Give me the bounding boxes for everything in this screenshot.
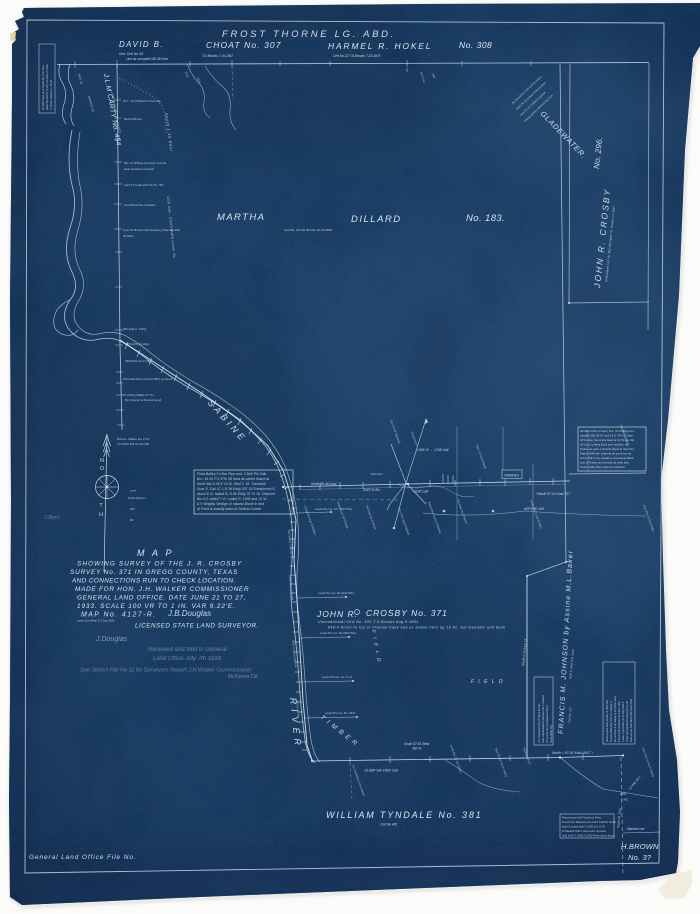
svg-text:AND CONNECTIONS RUN TO CHECK L: AND CONNECTIONS RUN TO CHECK LOCATION.	[71, 578, 236, 585]
svg-text:Brush Pile line: Brush Pile line	[124, 117, 142, 121]
svg-text:about 5 Vr. Island B. S.39 Ed: about 5 Vr. Island B. S.39 Eddy 37 Vr 18…	[197, 492, 275, 496]
svg-text:Lewis Pre Co. No.3297 Bdry: Lewis Pre Co. No.3297 Bdry	[320, 631, 357, 635]
svg-text:1127 27 Cedar bluff crk 40. 78: 1127 27 Cedar bluff crk 40. 78.5	[124, 183, 164, 187]
svg-text:Bro. 32.40 P.2 379r 38 Vara: Bro. 32.40 P.2 379r 38 Vara as called St…	[197, 477, 269, 481]
svg-text:Lewis Pre Co. No. 4197 Bdry: Lewis Pre Co. No. 4197 Bdry	[315, 507, 353, 511]
svg-text:FROST THORNE LG. ABD.: FROST THORNE LG. ABD.	[222, 29, 396, 40]
svg-text:SHOWING SURVEY OF THE J. R: SHOWING SURVEY OF THE J. R. CROSBY	[77, 561, 242, 568]
svg-text:Natural Genl back Corner at P: Natural Genl back Corner at Pitts Oak	[606, 699, 609, 742]
svg-text:J.Douglas: J.Douglas	[95, 636, 128, 643]
svg-text:MAP No. 4127-R.: MAP No. 4127-R.	[81, 612, 157, 619]
svg-text:Resurveyed Call Fractional R: Resurveyed Call Fractional River	[562, 816, 601, 820]
svg-text:Line as occupied 390.45 East: Line as occupied 390.45 East	[126, 57, 168, 61]
svg-text:J.Byrn: J.Byrn	[43, 515, 60, 521]
svg-text:Texas 1910 West about it Chann: Texas 1910 West about it Channel	[580, 465, 625, 469]
svg-text:South 87.51 West: South 87.51 West	[404, 742, 429, 746]
svg-text:DAVID B.: DAVID B.	[119, 40, 164, 49]
svg-text:No. 3?: No. 3?	[628, 853, 652, 862]
svg-text:west Counted with A 1090 at: west Counted with A 1090 at it Vr W	[562, 825, 605, 829]
svg-text:My Channel at Present found: My Channel at Present found	[125, 398, 162, 402]
svg-text:J.B.Douglas: J.B.Douglas	[167, 609, 211, 618]
svg-text:Branch Methodist Sect on it ha: Branch Methodist Sect on it hangs of	[610, 701, 613, 742]
svg-text:370 Adda Rose Techmit 408.3 u: 370 Adda Rose Techmit 408.3 up trench	[123, 377, 173, 381]
svg-text:O: O	[100, 466, 105, 472]
svg-text:Lewis Pre Co. No. 2317: Lewis Pre Co. No. 2317	[325, 711, 356, 715]
svg-text:it lines and Channel it as it: it lines and Channel it as it W.H. also	[618, 701, 621, 742]
svg-text:General Land Office File No.: General Land Office File No.	[29, 854, 137, 861]
svg-text:Cert. Cert No. 63: Cert. Cert No. 63	[119, 52, 143, 56]
svg-text:Flora Bailey Fo Bar Pipe und: Flora Bailey Fo Bar Pipe und. 2 Bell Pin…	[197, 472, 267, 476]
svg-text:notes Cost Bear O.T.Lay 1931: notes Cost Bear O.T.Lay 1931	[77, 619, 115, 623]
svg-text:Bank 424 and N 70 1/2 E 8 mile: Bank 424 and N 70 1/2 E 8 miles of Bank	[46, 64, 49, 110]
svg-text:Land Office July 7th 1933: Land Office July 7th 1933	[153, 656, 222, 662]
svg-text:CHOAT No. 307: CHOAT No. 307	[206, 40, 282, 50]
svg-text:SURVEY No. 371 IN GREGG COU: SURVEY No. 371 IN GREGG COUNTY, TEXAS	[70, 569, 238, 576]
svg-text:Said substantiated it likewis: Said substantiated it likewise tail 1 Ch…	[542, 695, 545, 743]
svg-text:Gum S. Call 47 L.S 39 Eddy 407: Gum S. Call 47 L.S 39 Eddy 407 18 Transf…	[197, 487, 276, 491]
svg-text:Lewis Pre Co. No.4197 Bdry: Lewis Pre Co. No.4197 Bdry	[318, 591, 355, 595]
svg-text:Marked Line: Marked Line	[627, 827, 645, 831]
svg-text:49 West: 49 West	[123, 234, 133, 238]
svg-text:Received and filed in General: Received and filed in General	[148, 647, 227, 653]
svg-text:Stand 1849 the channel as yet: Stand 1849 the channel as yet there do	[580, 452, 632, 456]
svg-text:LICENSED STATE LAND SURVEYO: LICENSED STATE LAND SURVEYOR.	[135, 623, 259, 630]
svg-text:1453: 1453	[620, 792, 627, 796]
svg-text:and of Points an exercise at: and of Points an exercise at calls also	[580, 461, 630, 465]
svg-text:North 89.46 East: North 89.46 East	[311, 482, 338, 486]
svg-text:10.66P Var 1863 Call: 10.66P Var 1863 Call	[364, 769, 398, 773]
svg-text:47 Christy Walker 47 Vrs: 47 Christy Walker 47 Vrs	[123, 393, 154, 397]
svg-text:MARSH: MARSH	[505, 473, 520, 478]
svg-text:No. 183.: No. 183.	[466, 213, 505, 224]
svg-text:GENERAL LAND OFFICE. DATE JUN: GENERAL LAND OFFICE. DATE JUNE 21 TO 27,	[77, 595, 246, 602]
svg-text:Cert No 400: Cert No 400	[380, 823, 397, 827]
svg-text:1777: 1777	[130, 489, 137, 493]
svg-text:Set Preparation by 24 hours he: Set Preparation by 24 hours he has	[538, 703, 541, 743]
svg-text:of Point is exactly point of: of Point is exactly point of Central Cor…	[197, 507, 262, 511]
svg-text:Mar E.L. Walker line 47Vs: Mar E.L. Walker line 47Vs	[117, 437, 150, 441]
svg-text:hold as Pr.7 1938 A 1082 Park: hold as Pr.7 1938 A 1082 Parks Stone alo…	[562, 834, 615, 838]
svg-text:1933. SCALE 100 VR TO 1 IN.: 1933. SCALE 100 VR TO 1 IN. VAR 9.22'E.	[77, 603, 236, 610]
svg-text:Old Clue: Old Clue	[371, 472, 383, 476]
svg-text:N: N	[100, 458, 104, 464]
svg-text:F I E L D: F I E L D	[471, 679, 504, 685]
svg-text:40.7 - 10 W Bears in Post Oak: 40.7 - 10 W Bears in Post Oak	[123, 99, 161, 103]
svg-text:3.9 100% 409 mi 126 (36): 3.9 100% 409 mi 126 (36)	[117, 442, 149, 446]
svg-text:found S.W. Marked Line and 5: found S.W. Marked Line and 5 Call Pin So…	[562, 820, 616, 824]
svg-text:Unconditional Cert No. 491: Unconditional Cert No. 491 T.D.Brooks Au…	[318, 620, 419, 624]
svg-text:Cert No. 33 T.D. Brooks: Cert No. 33 T.D. Brooks 12-29-1844	[284, 228, 332, 232]
svg-text:found and stands the channel m: found and stands the channel my old	[626, 701, 629, 742]
svg-text:of Road I started s.o. Brook: of Road I started s.o. Brook	[50, 79, 53, 110]
svg-text:Cert No.22 T.D.Brooks 7: Cert No.22 T.D.Brooks 7-19-1847	[333, 54, 381, 58]
svg-text:bank as per Turn about (36) Ba: bank as per Turn about (36) Bank Strip	[630, 698, 633, 742]
svg-text:W Marked Oak 5 Vara well I am: W Marked Oak 5 Vara well I am East	[562, 829, 606, 833]
svg-text:Bro 5.2 called 7 Vr. Lookd R: Bro 5.2 called 7 Vr. Lookd R. 1009 and 1…	[197, 497, 267, 501]
svg-text:H: H	[99, 512, 103, 518]
svg-text:213 McCan No.1 49 East: 213 McCan No.1 49 East	[124, 203, 155, 207]
svg-text:DILLARD: DILLARD	[351, 214, 402, 225]
svg-text:1143 Vr Bu: 1143 Vr Bu	[363, 488, 380, 492]
svg-text:WILLIAM TYNDALE No. 381: WILLIAM TYNDALE No. 381	[326, 810, 482, 820]
svg-text:MADE FOR HON. J.H. WALKER COMM: MADE FOR HON. J.H. WALKER COMMISSIONER	[75, 586, 249, 593]
svg-text:601. 37 W Bear line lower end: 601. 37 W Bear line lower end old	[124, 161, 166, 165]
svg-text:for nested also purchased it: for nested also purchased it down	[546, 705, 549, 743]
svg-text:HARMEL R. HOKEL: HARMEL R. HOKEL	[328, 41, 432, 51]
svg-text:MARTHA: MARTHA	[217, 212, 265, 223]
svg-text:260: 260	[130, 507, 135, 511]
svg-text:South Stinson: South Stinson	[128, 496, 146, 500]
svg-text:See Sketch File No 11 for Surv: See Sketch File No 11 for Surveyors Repo…	[80, 668, 253, 674]
svg-text:North Bis S.46 E 14 Vr. Mkd: North Bis S.46 E 14 Vr. Mkd T. 18. Tramm…	[197, 482, 266, 486]
svg-text:MAP: MAP	[137, 548, 179, 558]
svg-text:453 Sally H. 1140y: 453 Sally H. 1140y	[123, 327, 147, 331]
svg-text:T.D.Brooks 7-19-1847: T.D.Brooks 7-19-1847	[202, 54, 233, 58]
svg-text:1452: 1452	[622, 798, 629, 802]
svg-text:JOHN R.: JOHN R.	[316, 609, 358, 619]
svg-text:CROSBY No. 371: CROSBY No. 371	[366, 608, 448, 618]
svg-text:bank and Deer 114 East: bank and Deer 114 East	[124, 167, 154, 171]
svg-text:5 plan of purchase W Vr with B: 5 plan of purchase W Vr with Bank it	[622, 701, 625, 742]
svg-text:60: 60	[130, 518, 134, 522]
svg-text:found Bank only: found Bank only	[550, 724, 553, 743]
svg-text:848.4 Acres to top of chan: 848.4 Acres to top of channel bank and a…	[328, 626, 506, 630]
svg-text:the old lines it as stated at: the old lines it as stated at 12 W line …	[614, 696, 617, 742]
svg-text:McKenna Clk: McKenna Clk	[228, 674, 258, 680]
svg-text:ARROYO 400: ARROYO 400	[523, 507, 544, 511]
svg-text:North ↕ 87.01 East 4617 ↑: North ↕ 87.01 East 4617 ↑	[552, 751, 594, 755]
svg-text:Lewis Pre Co. No. 2 HT: Lewis Pre Co. No. 2 HT	[322, 675, 353, 679]
svg-text:H.BROWN: H.BROWN	[621, 842, 659, 851]
svg-text:A V Wrights Vestige of natur: A V Wrights Vestige of natural Stone in …	[197, 502, 264, 506]
svg-text:1366 Vr ← 1758 Call: 1366 Vr ← 1758 Call	[417, 448, 449, 452]
svg-text:of it by my lines East as it s: of it by my lines East as it stands I se…	[580, 443, 629, 447]
svg-text:No. 308: No. 308	[459, 40, 492, 50]
svg-text:382 Vr: 382 Vr	[412, 747, 422, 751]
svg-text:At 1909: lines as occupied 30: At 1909: lines as occupied 30 o me 30vs	[42, 64, 45, 110]
